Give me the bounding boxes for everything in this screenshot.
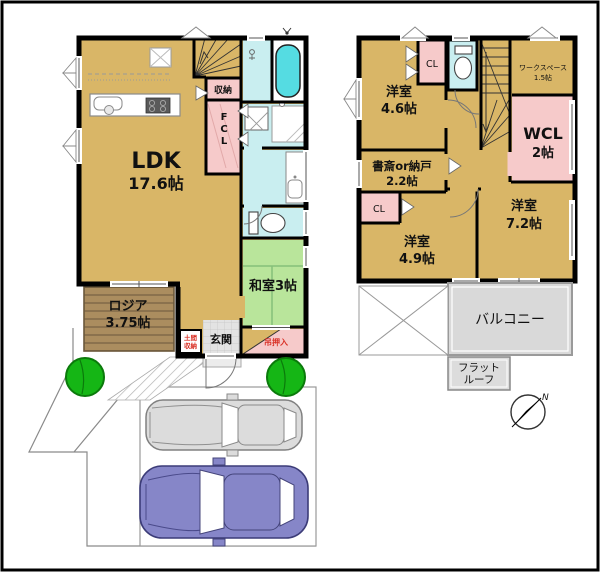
- car-gray: [146, 394, 302, 456]
- bathtub: [276, 45, 300, 97]
- roof-vent-triangle-2f-b: [528, 27, 556, 38]
- vanity: [286, 152, 304, 203]
- label-ldk-size: 17.6帖: [128, 174, 183, 193]
- floorplan-svg: LDK 17.6帖 収納 FCL 和室3帖 ロジア 3.75帖 玄関 土間 収納…: [0, 0, 600, 572]
- label-genkan: 玄関: [210, 332, 232, 346]
- label-ldk: LDK: [131, 149, 181, 174]
- label-washitsu: 和室3帖: [249, 278, 297, 294]
- shower-room: [243, 40, 271, 102]
- faucet-icon: [283, 28, 291, 35]
- label-bedroom3: 洋室: [511, 198, 537, 214]
- car-blue-roof: [224, 474, 280, 530]
- label-flatroof-2: ルーフ: [464, 374, 495, 386]
- car-blue-rear-window: [280, 478, 294, 526]
- gap-bedroom2-door: [450, 187, 478, 192]
- tree-right: [267, 358, 305, 396]
- label-bedroom3-size: 7.2帖: [506, 216, 542, 232]
- label-loggia: ロジア: [108, 299, 147, 314]
- label-study: 書斎or納戸: [372, 159, 432, 173]
- label-wcl: WCL: [523, 124, 563, 143]
- car-gray-mirror-top: [227, 394, 238, 400]
- label-balcony: バルコニー: [475, 312, 545, 328]
- label-cl2: CL: [373, 204, 386, 215]
- floor1-plan: LDK 17.6帖 収納 FCL 和室3帖 ロジア 3.75帖 玄関 土間 収納…: [63, 27, 309, 359]
- car-gray-mirror-bottom: [227, 450, 238, 456]
- label-bedroom2-size: 4.9帖: [399, 251, 435, 267]
- label-storage: 収納: [214, 84, 232, 96]
- car-gray-roof: [238, 405, 284, 445]
- floorplan-image: LDK 17.6帖 収納 FCL 和室3帖 ロジア 3.75帖 玄関 土間 収納…: [0, 0, 600, 572]
- label-loggia-size: 3.75帖: [105, 315, 150, 331]
- label-wcl-size: 2帖: [532, 145, 554, 161]
- car-blue-mirror-bottom: [213, 539, 225, 546]
- north-label: N: [542, 393, 549, 403]
- label-fcl: FCL: [219, 112, 230, 148]
- door-gap-washitsu: [238, 296, 245, 318]
- label-flatroof-1: フラット: [458, 362, 500, 374]
- label-tsurioshiire: 吊押入: [264, 337, 288, 347]
- car-gray-windshield: [222, 403, 238, 447]
- label-doma-2: 収納: [184, 341, 198, 350]
- gap-study-door: [444, 154, 449, 180]
- sink-drain: [105, 106, 114, 115]
- tree-left: [66, 358, 104, 396]
- washing-machine: [245, 107, 268, 130]
- label-study-size: 2.2帖: [386, 174, 418, 188]
- car-blue-mirror-top: [213, 458, 225, 465]
- roof-hatch: [359, 286, 448, 355]
- label-doma-1: 土間: [184, 333, 198, 342]
- label-bedroom1-size: 4.6帖: [381, 101, 417, 117]
- roof-vent-triangle-2f-a: [402, 27, 428, 38]
- door-gap-toilet-1f: [244, 204, 262, 209]
- toilet-icon-2f: [455, 46, 473, 79]
- label-cl1: CL: [426, 59, 439, 70]
- floor2-plan: 洋室 4.6帖 CL ワークスペース 1.5帖 WCL 2帖 書斎or納戸 2.…: [344, 27, 575, 390]
- door-gap-washroom: [244, 146, 262, 151]
- gap-bedroom1-door: [444, 100, 449, 128]
- car-blue-windshield: [200, 470, 224, 534]
- car-blue: [140, 458, 308, 546]
- roof-vent-triangle-1f: [182, 27, 210, 38]
- label-workspace-size: 1.5帖: [534, 73, 552, 82]
- compass: N: [511, 393, 549, 429]
- label-bedroom2: 洋室: [404, 234, 430, 250]
- car-gray-rear-window: [284, 408, 296, 442]
- label-workspace: ワークスペース: [519, 64, 567, 72]
- label-bedroom1: 洋室: [386, 84, 412, 100]
- toilet-icon-1f: [249, 212, 285, 234]
- gap-wcl-door: [508, 152, 513, 176]
